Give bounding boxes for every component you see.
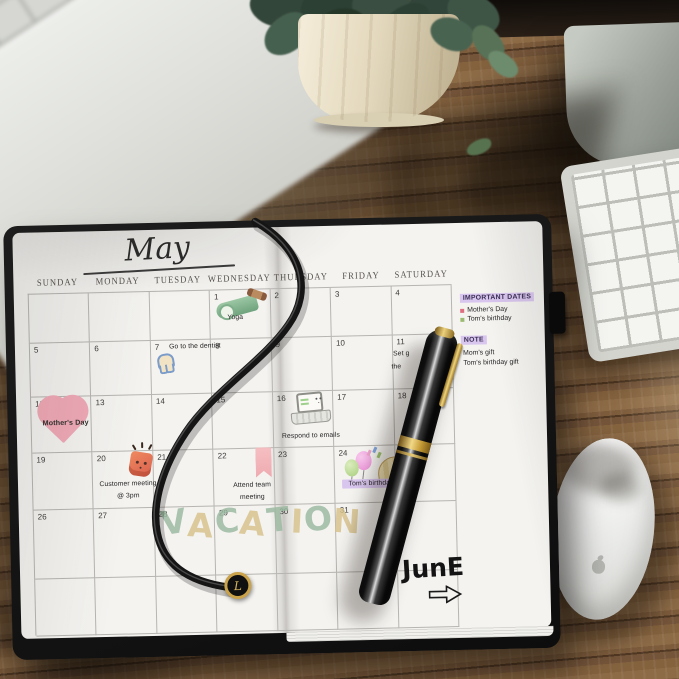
day-number: 19 <box>36 455 45 464</box>
calendar-cell: 9 <box>271 337 333 392</box>
keyboard-keys <box>571 156 679 353</box>
notes-sidebar: IMPORTANT DATES Mother's Day Tom's birth… <box>460 285 542 370</box>
day-number: 24 <box>338 449 347 458</box>
calendar-cell: 2 <box>270 288 332 338</box>
next-month-arrow-icon <box>428 585 462 604</box>
laptop-sticker <box>289 391 332 429</box>
month-title: May <box>94 228 221 270</box>
important-item-label: Mother's Day <box>467 306 508 314</box>
vacation-letter: O <box>302 501 334 537</box>
calendar: May SUNDAYMONDAYTUESDAYWEDNESDAYTHURSDAY… <box>12 221 551 639</box>
day-header: MONDAY <box>87 274 147 287</box>
calendar-cell: 14 <box>152 394 214 451</box>
vacation-letter: V <box>158 504 189 541</box>
day-number: 9 <box>276 340 281 349</box>
vacation-letter: C <box>213 503 240 538</box>
day-number: 13 <box>95 398 104 407</box>
day-number: 16 <box>277 394 286 403</box>
important-item-label: Tom's birthday <box>467 315 511 323</box>
pen-loop <box>549 292 566 334</box>
day-header: SATURDAY <box>391 268 451 281</box>
calendar-cell: 15 <box>212 392 274 449</box>
day-number: 23 <box>278 450 287 459</box>
calendar-cell: 10 <box>332 335 394 390</box>
laptop-sticker-keyboard <box>291 409 332 425</box>
day-header: SUNDAY <box>27 276 87 289</box>
note-title: NOTE <box>461 335 487 345</box>
day-number: 17 <box>337 393 346 402</box>
vacation-letter: A <box>238 505 267 540</box>
vacation-letter: I <box>290 504 304 538</box>
note-item: Mom's gift <box>463 348 541 357</box>
leaf-shadow-on-mouse <box>599 472 642 504</box>
calendar-cell <box>35 578 97 636</box>
vacation-letter: T <box>265 502 291 537</box>
tooth-sticker <box>156 352 175 370</box>
day-number: 11 <box>396 337 405 346</box>
day-number: 3 <box>335 290 340 299</box>
day-number: 10 <box>336 339 345 348</box>
important-item: Tom's birthday <box>460 314 540 323</box>
vacation-lettering: VACATION <box>161 501 362 539</box>
calendar-cell: 27 <box>94 508 156 578</box>
spark-icon <box>141 442 143 448</box>
day-header: FRIDAY <box>331 269 391 282</box>
day-number: 26 <box>38 512 47 521</box>
day-header: THURSDAY <box>271 270 331 283</box>
pink-bullet-icon <box>460 308 464 312</box>
important-dates-title: IMPORTANT DATES <box>460 292 534 303</box>
apple-logo-icon <box>591 559 605 574</box>
day-number: 5 <box>34 346 39 355</box>
note-block: NOTE Mom's gift Tom's birthday gift <box>461 327 542 367</box>
note-item: Tom's birthday gift <box>463 358 541 367</box>
day-number: 21 <box>157 453 166 462</box>
important-item: Mother's Day <box>460 305 540 314</box>
balloon-icon <box>345 459 359 476</box>
calendar-cell <box>277 573 339 631</box>
calendar-cell: 6 <box>90 341 152 396</box>
calendar-cell: 5 <box>30 342 92 397</box>
calendar-cell <box>156 576 218 634</box>
calendar-cell <box>89 292 151 342</box>
calendar-cell: 26 <box>34 509 96 579</box>
planner-pages: May SUNDAYMONDAYTUESDAYWEDNESDAYTHURSDAY… <box>12 221 551 639</box>
calendar-cell <box>96 577 158 635</box>
calendar-cell: 3 <box>331 286 393 336</box>
calendar-cell: 19 <box>32 452 94 510</box>
day-number: 4 <box>395 288 400 297</box>
day-number: 15 <box>216 395 225 404</box>
day-number: 2 <box>274 291 279 300</box>
green-bullet-icon <box>460 317 464 321</box>
day-header: TUESDAY <box>148 273 208 286</box>
day-number: 22 <box>218 451 227 460</box>
calendar-cell <box>29 293 91 343</box>
event-mothers-day: Mother's Day <box>29 417 103 428</box>
day-number: 20 <box>97 454 106 463</box>
desk-scene: May SUNDAYMONDAYTUESDAYWEDNESDAYTHURSDAY… <box>0 0 679 679</box>
charm-letter: L <box>234 578 242 592</box>
day-number: 27 <box>98 511 107 520</box>
day-number: 14 <box>156 397 165 406</box>
day-number: 6 <box>94 344 99 353</box>
planner-notebook: May SUNDAYMONDAYTUESDAYWEDNESDAYTHURSDAY… <box>3 214 561 660</box>
next-month-label: JunE <box>393 551 473 584</box>
alarm-sticker <box>128 451 153 478</box>
vacation-letter: A <box>186 508 214 543</box>
day-header: WEDNESDAY <box>208 272 271 285</box>
